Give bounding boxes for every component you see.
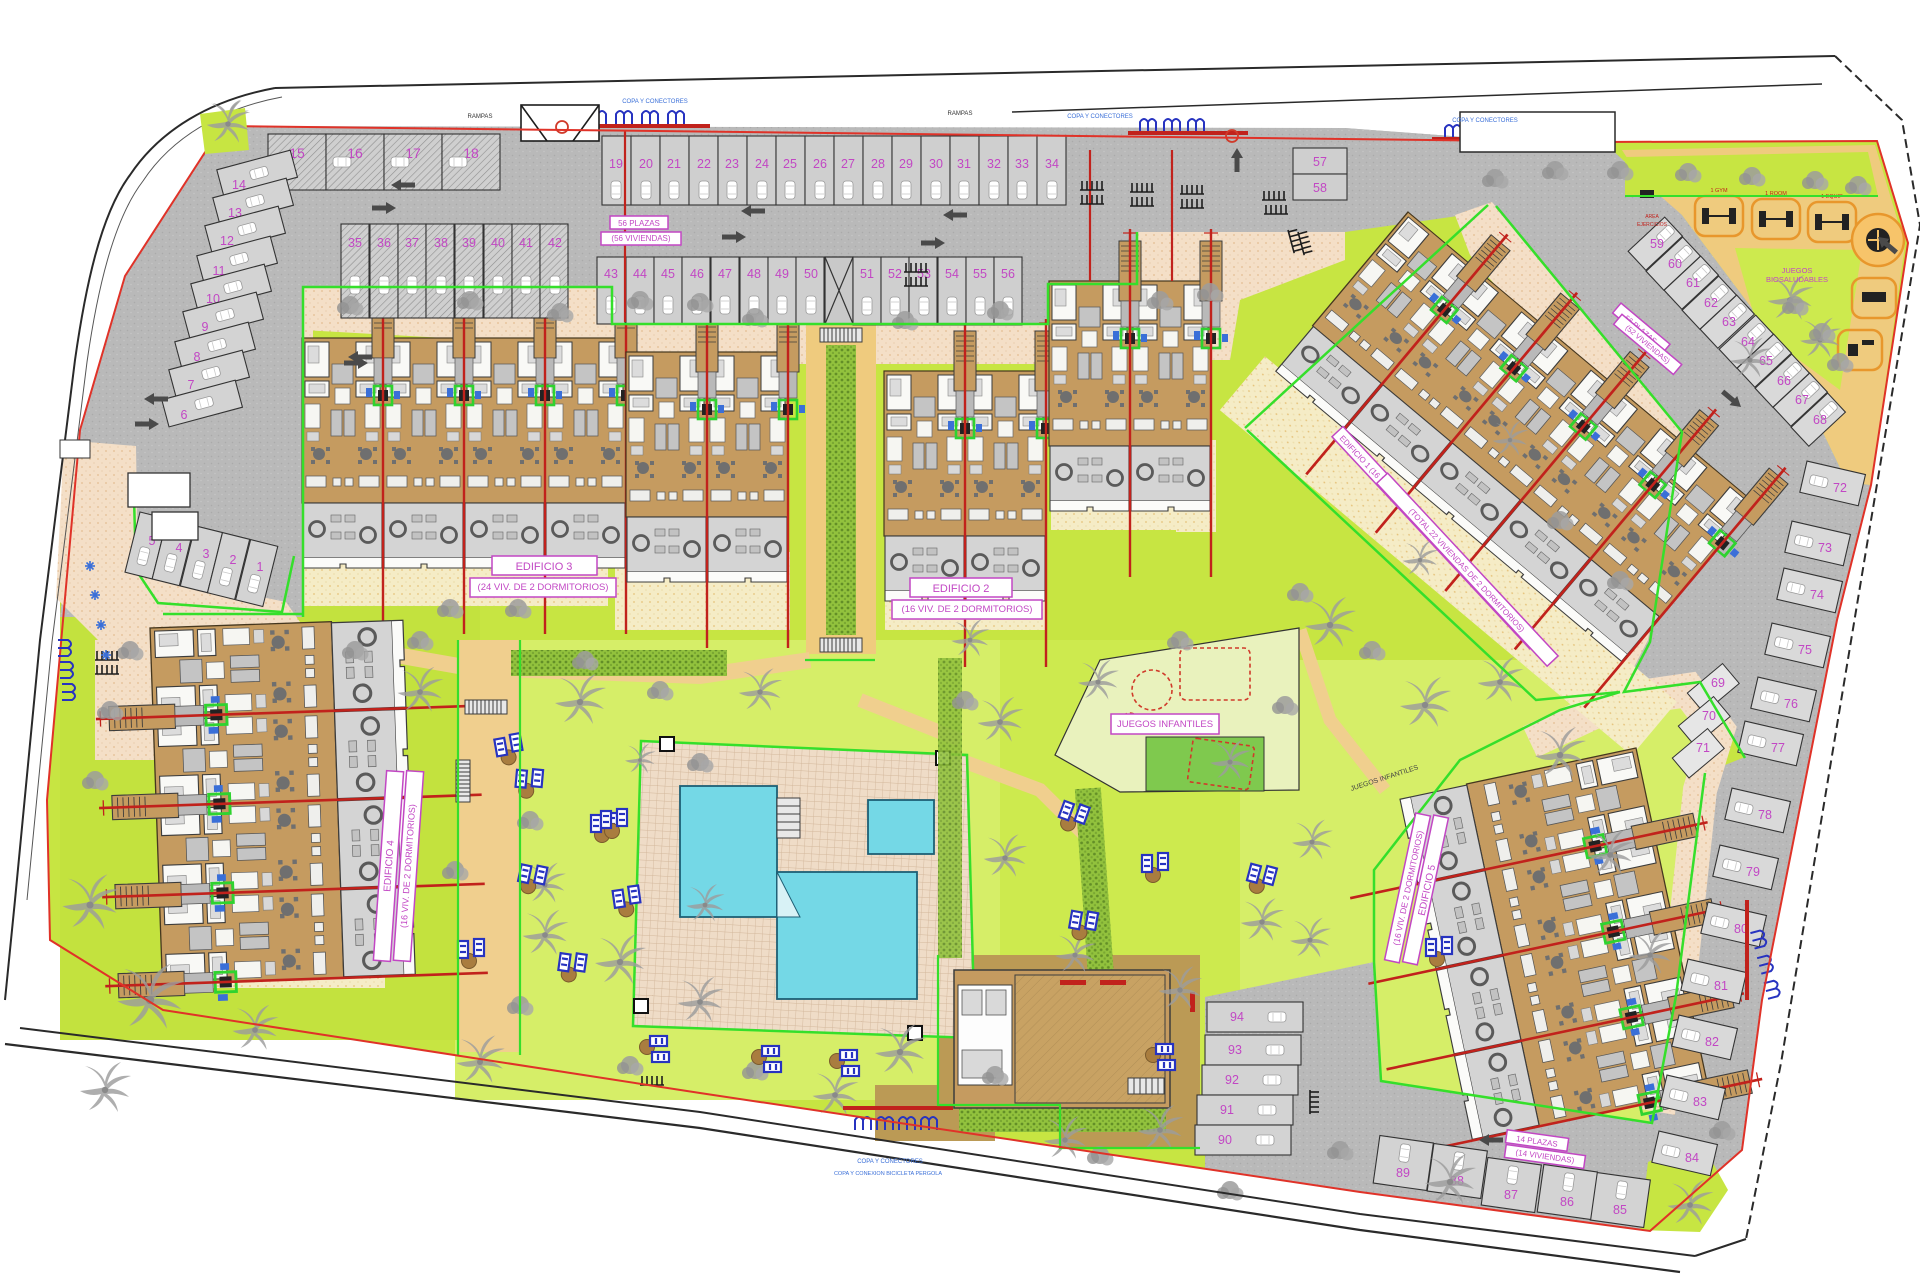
svg-text:COPA Y CONECTORES: COPA Y CONECTORES [857, 1159, 923, 1165]
svg-text:COPA Y CONECTORES: COPA Y CONECTORES [1067, 114, 1133, 120]
svg-text:EDIFICIO 3: EDIFICIO 3 [516, 561, 573, 573]
svg-text:63: 63 [1722, 315, 1736, 329]
svg-text:44: 44 [633, 267, 647, 281]
svg-text:32: 32 [987, 157, 1001, 171]
svg-text:74: 74 [1810, 588, 1824, 602]
svg-text:48: 48 [747, 267, 761, 281]
svg-text:26: 26 [813, 157, 827, 171]
svg-text:35: 35 [348, 236, 362, 250]
svg-text:51: 51 [860, 267, 874, 281]
svg-text:(56 VIVIENDAS): (56 VIVIENDAS) [611, 234, 670, 243]
svg-text:50: 50 [804, 267, 818, 281]
svg-text:(16 VIV. DE 2 DORMITORIOS): (16 VIV. DE 2 DORMITORIOS) [902, 604, 1033, 615]
svg-text:3: 3 [203, 547, 210, 561]
svg-text:56: 56 [1001, 267, 1015, 281]
svg-text:29: 29 [899, 157, 913, 171]
svg-text:84: 84 [1685, 1151, 1699, 1165]
svg-text:9: 9 [202, 320, 209, 334]
svg-text:76: 76 [1784, 697, 1798, 711]
svg-text:82: 82 [1705, 1035, 1719, 1049]
svg-text:62: 62 [1704, 296, 1718, 310]
svg-text:59: 59 [1650, 237, 1664, 251]
svg-text:69: 69 [1711, 676, 1725, 690]
svg-text:40: 40 [491, 236, 505, 250]
svg-text:68: 68 [1813, 413, 1827, 427]
svg-text:19: 19 [609, 157, 623, 171]
svg-text:37: 37 [405, 236, 419, 250]
svg-text:1 GYM: 1 GYM [1710, 188, 1728, 194]
svg-text:1: 1 [257, 560, 264, 574]
svg-text:75: 75 [1798, 643, 1812, 657]
svg-text:77: 77 [1771, 741, 1785, 755]
svg-text:BIOSALUDABLES: BIOSALUDABLES [1766, 275, 1828, 284]
svg-text:94: 94 [1230, 1010, 1244, 1024]
svg-text:61: 61 [1686, 276, 1700, 290]
svg-text:22: 22 [697, 157, 711, 171]
svg-text:EDIFICIO 2: EDIFICIO 2 [933, 583, 990, 595]
svg-text:2: 2 [230, 553, 237, 567]
svg-text:31: 31 [957, 157, 971, 171]
svg-text:71: 71 [1696, 741, 1710, 755]
svg-text:COPA Y CONEXION BICICLETA PERG: COPA Y CONEXION BICICLETA PERGOLA [834, 1171, 942, 1177]
svg-text:87: 87 [1504, 1188, 1518, 1202]
svg-text:25: 25 [783, 157, 797, 171]
svg-text:JUEGOS: JUEGOS [1782, 266, 1813, 275]
svg-text:90: 90 [1218, 1133, 1232, 1147]
svg-text:85: 85 [1613, 1203, 1627, 1217]
svg-text:57: 57 [1313, 155, 1327, 169]
svg-text:21: 21 [667, 157, 681, 171]
svg-text:7: 7 [188, 378, 195, 392]
svg-text:24: 24 [755, 157, 769, 171]
svg-text:(24 VIV. DE 2 DORMITORIOS): (24 VIV. DE 2 DORMITORIOS) [478, 582, 609, 593]
svg-text:43: 43 [604, 267, 618, 281]
svg-text:73: 73 [1818, 541, 1832, 555]
svg-text:91: 91 [1220, 1103, 1234, 1117]
svg-text:49: 49 [775, 267, 789, 281]
svg-text:56 PLAZAS: 56 PLAZAS [618, 219, 660, 228]
svg-text:EJERCICIOS: EJERCICIOS [1637, 222, 1668, 228]
svg-text:60: 60 [1668, 257, 1682, 271]
svg-text:30: 30 [929, 157, 943, 171]
svg-text:66: 66 [1777, 374, 1791, 388]
svg-text:28: 28 [871, 157, 885, 171]
svg-text:39: 39 [462, 236, 476, 250]
svg-text:78: 78 [1758, 808, 1772, 822]
svg-text:27: 27 [841, 157, 855, 171]
svg-text:67: 67 [1795, 393, 1809, 407]
svg-text:53: 53 [917, 267, 931, 281]
svg-text:COPA Y CONECTORES: COPA Y CONECTORES [622, 99, 688, 105]
svg-text:RAMPAS: RAMPAS [948, 111, 973, 117]
svg-text:41: 41 [519, 236, 533, 250]
svg-text:72: 72 [1833, 481, 1847, 495]
svg-text:55: 55 [973, 267, 987, 281]
svg-text:42: 42 [548, 236, 562, 250]
svg-text:89: 89 [1396, 1166, 1410, 1180]
svg-text:47: 47 [718, 267, 732, 281]
svg-text:34: 34 [1045, 157, 1059, 171]
svg-text:33: 33 [1015, 157, 1029, 171]
svg-text:81: 81 [1714, 979, 1728, 993]
svg-text:92: 92 [1225, 1073, 1239, 1087]
svg-text:52: 52 [888, 267, 902, 281]
svg-text:4: 4 [176, 541, 183, 555]
svg-text:38: 38 [434, 236, 448, 250]
svg-text:AREA: AREA [1645, 214, 1659, 220]
svg-text:JUEGOS INFANTILES: JUEGOS INFANTILES [1117, 719, 1213, 730]
svg-text:54: 54 [945, 267, 959, 281]
svg-text:6: 6 [181, 408, 188, 422]
svg-text:86: 86 [1560, 1195, 1574, 1209]
svg-text:COPA Y CONECTORES: COPA Y CONECTORES [1452, 118, 1518, 124]
svg-text:70: 70 [1702, 709, 1716, 723]
svg-text:83: 83 [1693, 1095, 1707, 1109]
svg-text:RAMPAS: RAMPAS [468, 114, 493, 120]
svg-text:46: 46 [690, 267, 704, 281]
svg-text:36: 36 [377, 236, 391, 250]
svg-text:93: 93 [1228, 1043, 1242, 1057]
svg-text:45: 45 [661, 267, 675, 281]
svg-text:20: 20 [639, 157, 653, 171]
svg-text:58: 58 [1313, 181, 1327, 195]
svg-text:79: 79 [1746, 865, 1760, 879]
svg-text:23: 23 [725, 157, 739, 171]
